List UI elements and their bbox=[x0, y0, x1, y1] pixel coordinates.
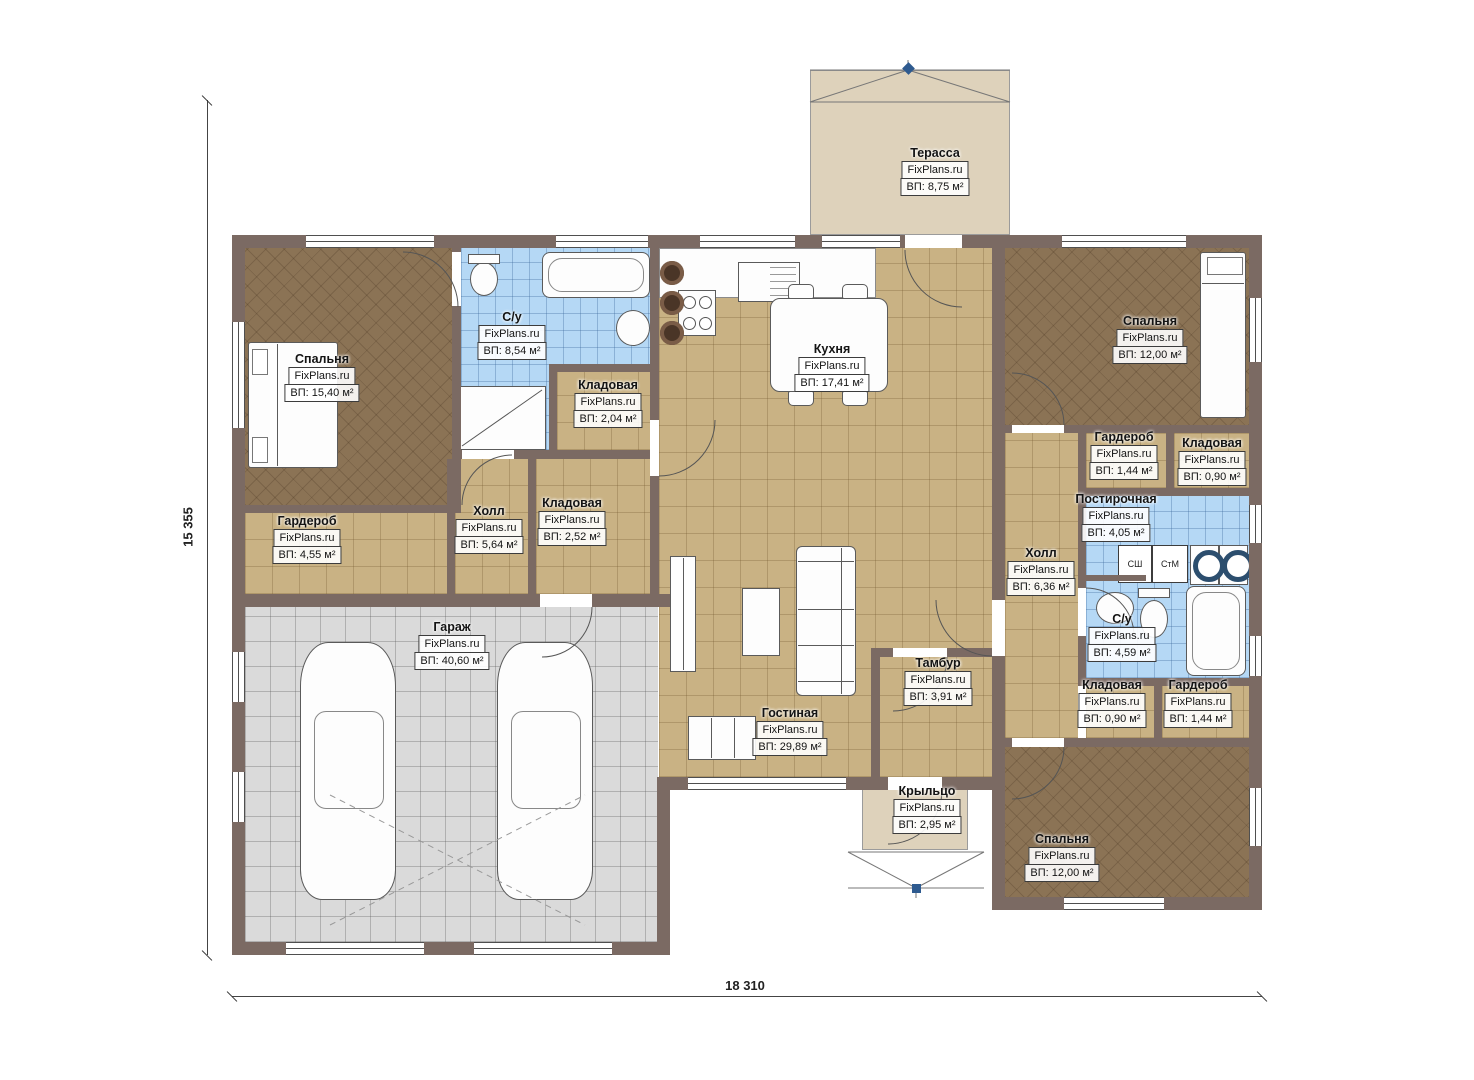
garage-door bbox=[286, 942, 424, 955]
door-opening bbox=[905, 235, 962, 248]
room-label-garage: Гараж FixPlans.ru ВП: 40,60 м² bbox=[414, 620, 489, 670]
wall bbox=[1086, 575, 1146, 581]
chair bbox=[842, 391, 868, 406]
room-area: ВП: 40,60 м² bbox=[414, 652, 489, 670]
window bbox=[1249, 505, 1262, 543]
wall bbox=[549, 364, 557, 454]
room-area: ВП: 6,36 м² bbox=[1006, 578, 1075, 596]
room-name: Кладовая bbox=[578, 378, 638, 392]
car-roof bbox=[314, 711, 384, 809]
room-name: Крыльцо bbox=[899, 784, 956, 798]
door-opening bbox=[650, 420, 659, 476]
watermark: FixPlans.ru bbox=[288, 367, 355, 385]
oven-icon bbox=[660, 261, 684, 285]
car bbox=[300, 642, 396, 900]
room-name: Спальня bbox=[1035, 832, 1089, 846]
wall bbox=[528, 459, 536, 594]
room-name: Спальня bbox=[295, 352, 349, 366]
room-label-storage-mid: Кладовая FixPlans.ru ВП: 2,52 м² bbox=[537, 496, 606, 546]
room-label-bedroom-top-right: Спальня FixPlans.ru ВП: 12,00 м² bbox=[1112, 314, 1187, 364]
bathtub-inner bbox=[1192, 592, 1240, 670]
room-area: ВП: 8,75 м² bbox=[900, 178, 969, 196]
room-label-laundry: Постирочная FixPlans.ru ВП: 4,05 м² bbox=[1075, 492, 1156, 542]
window bbox=[1249, 298, 1262, 362]
oven-icon bbox=[660, 321, 684, 345]
window bbox=[556, 235, 648, 248]
room-name: Тамбур bbox=[915, 656, 960, 670]
wall bbox=[232, 594, 670, 607]
room-area: ВП: 17,41 м² bbox=[794, 374, 869, 392]
room-label-wardrobe-right-lower: Гардероб FixPlans.ru ВП: 1,44 м² bbox=[1163, 678, 1232, 728]
room-label-wardrobe-left: Гардероб FixPlans.ru ВП: 4,55 м² bbox=[272, 514, 341, 564]
toilet-icon bbox=[470, 262, 498, 296]
dimension-line-bottom bbox=[232, 996, 1262, 997]
door-opening bbox=[452, 252, 461, 306]
car-roof bbox=[511, 711, 581, 809]
watermark: FixPlans.ru bbox=[1082, 507, 1149, 525]
room-label-living: Гостиная FixPlans.ru ВП: 29,89 м² bbox=[752, 706, 827, 756]
room-area: ВП: 5,64 м² bbox=[454, 536, 523, 554]
room-area: ВП: 0,90 м² bbox=[1177, 468, 1246, 486]
room-name: Терасса bbox=[910, 146, 960, 160]
watermark: FixPlans.ru bbox=[798, 357, 865, 375]
cooktop bbox=[678, 290, 716, 336]
watermark: FixPlans.ru bbox=[455, 519, 522, 537]
watermark: FixPlans.ru bbox=[1078, 693, 1145, 711]
floor-plan: СШ СтМ bbox=[0, 0, 1474, 1080]
washer-box: СтМ bbox=[1152, 545, 1188, 583]
bathtub bbox=[1186, 586, 1246, 676]
dimension-label-bottom: 18 310 bbox=[725, 978, 765, 993]
window bbox=[1249, 636, 1262, 676]
wall bbox=[1154, 686, 1162, 738]
toilet-tank bbox=[468, 254, 500, 264]
tv-panel bbox=[670, 556, 696, 672]
window bbox=[1064, 897, 1164, 910]
room-name: С/у bbox=[502, 310, 521, 324]
chair bbox=[788, 284, 814, 299]
room-area: ВП: 1,44 м² bbox=[1089, 462, 1158, 480]
pillow bbox=[252, 437, 268, 463]
room-name: Спальня bbox=[1123, 314, 1177, 328]
window bbox=[1062, 235, 1186, 248]
washbasin bbox=[616, 310, 650, 346]
dryer-label: СШ bbox=[1128, 559, 1143, 569]
wall bbox=[1078, 433, 1086, 686]
room-area: ВП: 4,05 м² bbox=[1081, 524, 1150, 542]
wall bbox=[657, 790, 670, 955]
door-opening bbox=[540, 594, 592, 607]
watermark: FixPlans.ru bbox=[418, 635, 485, 653]
window bbox=[232, 652, 245, 702]
coffee-table bbox=[742, 588, 780, 656]
tv-stand bbox=[688, 716, 756, 760]
window bbox=[232, 772, 245, 822]
room-area: ВП: 12,00 м² bbox=[1112, 346, 1187, 364]
room-name: Кухня bbox=[814, 342, 851, 356]
room-name: Холл bbox=[1025, 546, 1056, 560]
room-area: ВП: 2,52 м² bbox=[537, 528, 606, 546]
window bbox=[688, 777, 846, 790]
car bbox=[497, 642, 593, 900]
bathtub bbox=[542, 252, 650, 298]
room-name: С/у bbox=[1112, 612, 1131, 626]
room-name: Кладовая bbox=[1182, 436, 1242, 450]
room-label-hall-left: Холл FixPlans.ru ВП: 5,64 м² bbox=[454, 504, 523, 554]
watermark: FixPlans.ru bbox=[756, 721, 823, 739]
window bbox=[700, 235, 795, 248]
room-label-storage-top: Кладовая FixPlans.ru ВП: 2,04 м² bbox=[573, 378, 642, 428]
watermark: FixPlans.ru bbox=[904, 671, 971, 689]
watermark: FixPlans.ru bbox=[538, 511, 605, 529]
washer-label: СтМ bbox=[1161, 559, 1179, 569]
room-area: ВП: 15,40 м² bbox=[284, 384, 359, 402]
room-label-porch: Крыльцо FixPlans.ru ВП: 2,95 м² bbox=[892, 784, 961, 834]
roof-ridge-marker bbox=[912, 884, 921, 893]
watermark: FixPlans.ru bbox=[893, 799, 960, 817]
watermark: FixPlans.ru bbox=[1028, 847, 1095, 865]
pillow bbox=[252, 349, 268, 375]
room-area: ВП: 2,95 м² bbox=[892, 816, 961, 834]
room-name: Гостиная bbox=[762, 706, 819, 720]
wall bbox=[871, 648, 880, 790]
room-area: ВП: 2,04 м² bbox=[573, 410, 642, 428]
room-area: ВП: 1,44 м² bbox=[1163, 710, 1232, 728]
bed bbox=[1200, 252, 1246, 418]
room-area: ВП: 3,91 м² bbox=[903, 688, 972, 706]
room-label-bedroom-left: Спальня FixPlans.ru ВП: 15,40 м² bbox=[284, 352, 359, 402]
shower-tray bbox=[458, 386, 546, 450]
room-label-wardrobe-right-upper: Гардероб FixPlans.ru ВП: 1,44 м² bbox=[1089, 430, 1158, 480]
watermark: FixPlans.ru bbox=[1007, 561, 1074, 579]
bathtub-inner bbox=[548, 258, 644, 292]
room-name: Холл bbox=[473, 504, 504, 518]
room-name: Гардероб bbox=[1168, 678, 1227, 692]
watermark: FixPlans.ru bbox=[478, 325, 545, 343]
room-label-storage-right-lower: Кладовая FixPlans.ru ВП: 0,90 м² bbox=[1077, 678, 1146, 728]
room-area: ВП: 4,59 м² bbox=[1087, 644, 1156, 662]
watermark: FixPlans.ru bbox=[1090, 445, 1157, 463]
room-name: Постирочная bbox=[1075, 492, 1156, 506]
wall bbox=[1166, 433, 1174, 488]
room-label-bath-right: С/у FixPlans.ru ВП: 4,59 м² bbox=[1087, 612, 1156, 662]
room-name: Кладовая bbox=[1082, 678, 1142, 692]
chair bbox=[788, 391, 814, 406]
watermark: FixPlans.ru bbox=[273, 529, 340, 547]
watermark: FixPlans.ru bbox=[901, 161, 968, 179]
room-area: ВП: 8,54 м² bbox=[477, 342, 546, 360]
watermark: FixPlans.ru bbox=[1178, 451, 1245, 469]
room-label-hall-right: Холл FixPlans.ru ВП: 6,36 м² bbox=[1006, 546, 1075, 596]
toilet-tank bbox=[1138, 588, 1170, 598]
room-name: Гардероб bbox=[1094, 430, 1153, 444]
wall bbox=[245, 505, 461, 513]
machine-drum-icon bbox=[1193, 550, 1225, 582]
pillow bbox=[1207, 257, 1243, 275]
window bbox=[232, 322, 245, 428]
room-label-bedroom-bottom-right: Спальня FixPlans.ru ВП: 12,00 м² bbox=[1024, 832, 1099, 882]
room-label-kitchen: Кухня FixPlans.ru ВП: 17,41 м² bbox=[794, 342, 869, 392]
room-area: ВП: 4,55 м² bbox=[272, 546, 341, 564]
watermark: FixPlans.ru bbox=[1116, 329, 1183, 347]
door-opening bbox=[1012, 425, 1064, 433]
door-opening bbox=[1078, 588, 1086, 636]
watermark: FixPlans.ru bbox=[574, 393, 641, 411]
room-name: Гараж bbox=[433, 620, 470, 634]
window bbox=[822, 235, 900, 248]
watermark: FixPlans.ru bbox=[1088, 627, 1155, 645]
room-name: Гардероб bbox=[277, 514, 336, 528]
watermark: FixPlans.ru bbox=[1164, 693, 1231, 711]
dimension-line-left bbox=[207, 100, 208, 955]
room-area: ВП: 0,90 м² bbox=[1077, 710, 1146, 728]
room-name: Кладовая bbox=[542, 496, 602, 510]
room-label-terrace: Терасса FixPlans.ru ВП: 8,75 м² bbox=[900, 146, 969, 196]
door-opening bbox=[1012, 738, 1064, 747]
room-area: ВП: 29,89 м² bbox=[752, 738, 827, 756]
dimension-label-left: 15 355 bbox=[181, 507, 196, 547]
window bbox=[306, 235, 434, 248]
garage-door bbox=[474, 942, 612, 955]
door-opening bbox=[992, 600, 1005, 656]
sofa bbox=[796, 546, 856, 696]
room-area: ВП: 12,00 м² bbox=[1024, 864, 1099, 882]
wall bbox=[549, 364, 659, 372]
window bbox=[1249, 788, 1262, 846]
wall bbox=[992, 235, 1005, 910]
oven-icon bbox=[660, 291, 684, 315]
room-label-storage-right-upper: Кладовая FixPlans.ru ВП: 0,90 м² bbox=[1177, 436, 1246, 486]
room-label-vestibule: Тамбур FixPlans.ru ВП: 3,91 м² bbox=[903, 656, 972, 706]
door-opening bbox=[462, 450, 514, 459]
chair bbox=[842, 284, 868, 299]
room-label-bath-left: С/у FixPlans.ru ВП: 8,54 м² bbox=[477, 310, 546, 360]
